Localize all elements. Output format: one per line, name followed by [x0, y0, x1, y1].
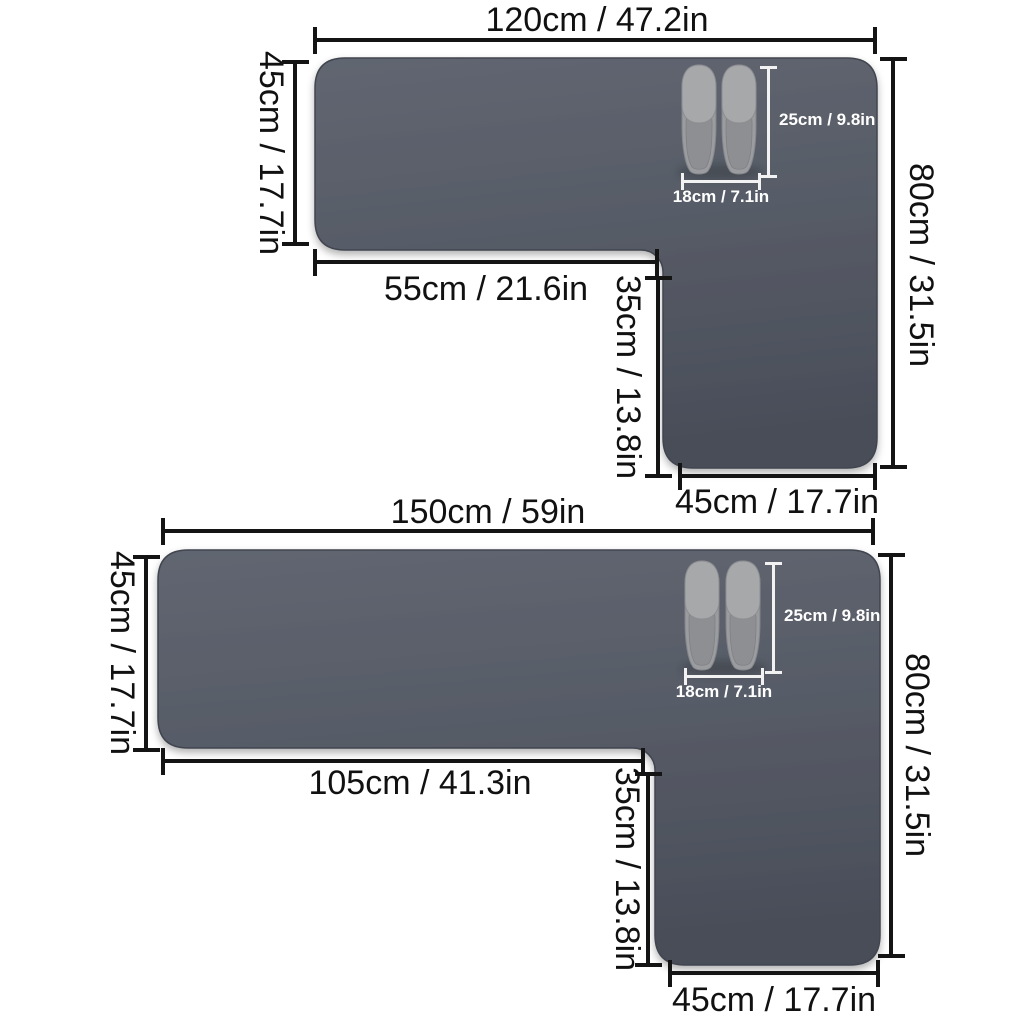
dim-label-large-inner-width: 105cm / 41.3in: [270, 763, 570, 803]
slipper-left-illustration: [682, 65, 716, 174]
dim-label-small-right-height: 80cm / 31.5in: [901, 115, 941, 415]
dim-label-small-left-height: 45cm / 17.7in: [251, 3, 291, 303]
slipper-width-label-small: 18cm / 7.1in: [641, 187, 801, 207]
slipper-length-label-small: 25cm / 9.8in: [779, 110, 875, 130]
dim-label-small-inner-width: 55cm / 21.6in: [336, 269, 636, 309]
dim-label-small-top-width: 120cm / 47.2in: [447, 0, 747, 40]
dim-label-large-right-height: 80cm / 31.5in: [897, 605, 937, 905]
slipper-left-illustration: [685, 561, 719, 670]
dim-label-large-top-width: 150cm / 59in: [338, 492, 638, 532]
slipper-width-line-large: [684, 675, 764, 678]
slipper-length-line-large: [772, 562, 775, 674]
mat-size-diagram: 120cm / 47.2in 45cm / 17.7in 55cm / 21.6…: [0, 0, 1024, 1024]
dim-line-small-right-height: [891, 57, 895, 469]
dim-line-large-right-height: [889, 553, 893, 958]
dim-label-large-bottom-width: 45cm / 17.7in: [624, 980, 924, 1020]
dim-line-small-left-height: [293, 60, 297, 246]
dim-line-large-left-height: [144, 555, 148, 752]
slipper-length-label-large: 25cm / 9.8in: [784, 606, 880, 626]
slipper-right-illustration: [722, 65, 756, 174]
dim-label-small-bottom-width: 45cm / 17.7in: [627, 482, 927, 522]
slipper-width-line-small: [681, 180, 761, 183]
dim-label-large-left-height: 45cm / 17.7in: [102, 503, 142, 803]
dim-line-large-top-width: [161, 529, 875, 533]
dim-label-large-inner-height: 35cm / 13.8in: [607, 719, 647, 1019]
slipper-length-line-small: [767, 66, 770, 178]
dim-line-large-bottom-width: [668, 971, 880, 975]
dim-line-small-inner-height: [656, 276, 660, 478]
slipper-width-label-large: 18cm / 7.1in: [644, 682, 804, 702]
slipper-right-illustration: [726, 561, 760, 670]
dim-line-small-bottom-width: [678, 474, 877, 478]
dim-line-small-top-width: [313, 38, 877, 42]
